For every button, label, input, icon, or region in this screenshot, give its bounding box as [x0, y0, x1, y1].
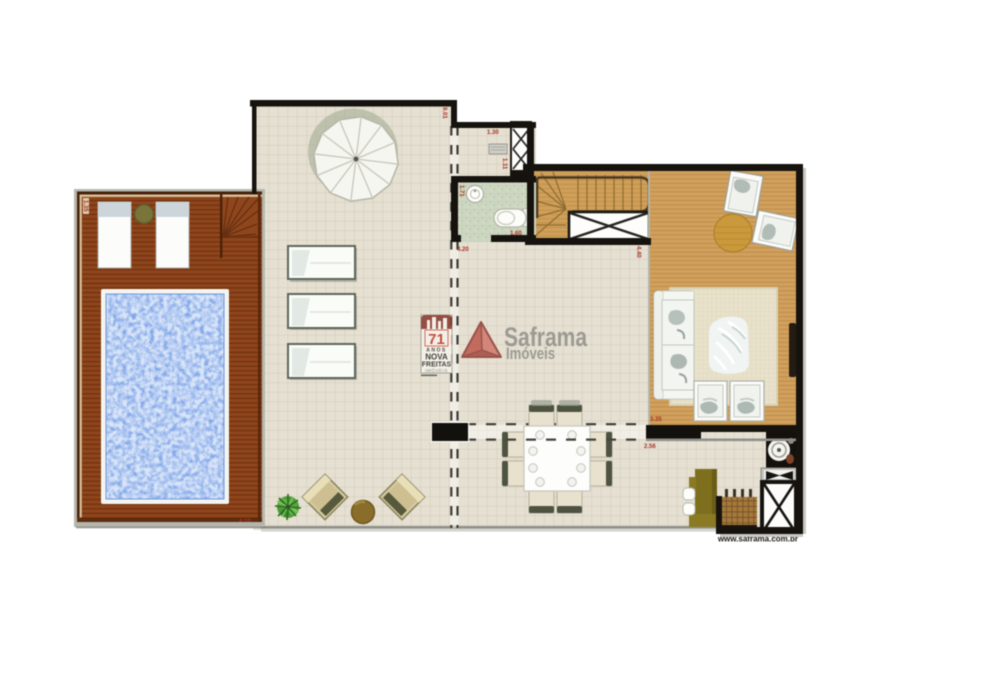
svg-text:1.71: 1.71: [458, 185, 464, 197]
svg-text:9.01: 9.01: [441, 107, 447, 119]
svg-text:IMÓVEIS: IMÓVEIS: [425, 367, 448, 373]
svg-text:71: 71: [428, 331, 445, 348]
svg-text:4.40: 4.40: [635, 246, 641, 258]
svg-text:1.60: 1.60: [510, 231, 522, 237]
svg-text:Imóveis: Imóveis: [506, 345, 555, 364]
svg-text:3.35: 3.35: [650, 417, 662, 423]
svg-text:2.56: 2.56: [644, 444, 656, 450]
svg-text:1.30: 1.30: [487, 130, 499, 136]
svg-text:NOVA: NOVA: [425, 353, 448, 362]
svg-text:1.11: 1.11: [501, 158, 507, 170]
svg-text:4.20: 4.20: [457, 247, 469, 253]
svg-text:1.35: 1.35: [82, 200, 88, 212]
